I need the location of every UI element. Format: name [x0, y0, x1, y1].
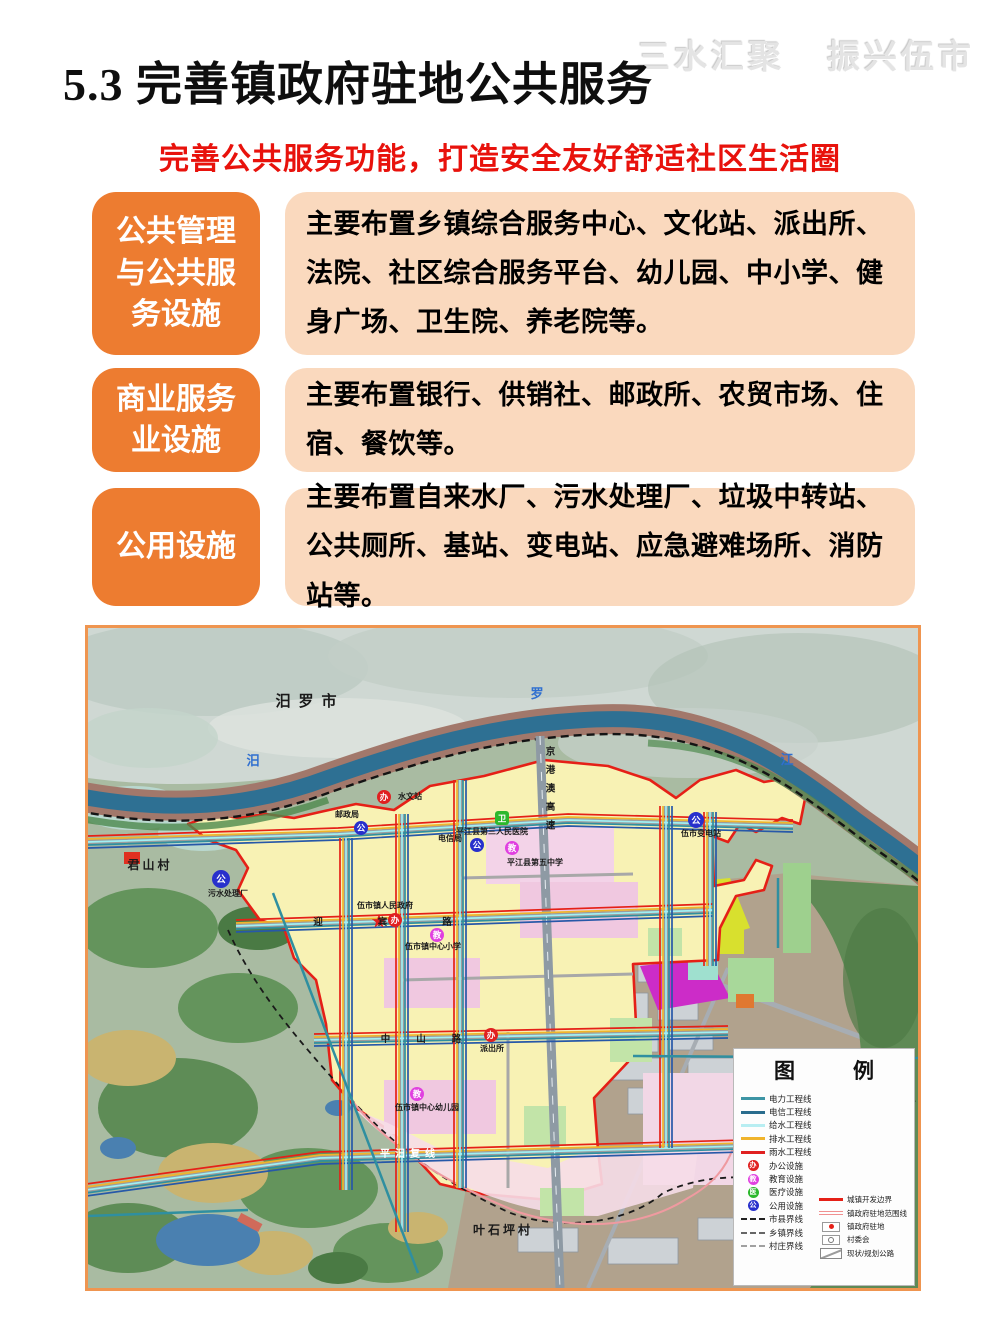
legend-title: 图 例 [741, 1055, 907, 1085]
row-utilities: 公用设施 主要布置自来水厂、污水处理厂、垃圾中转站、公共厕所、基站、变电站、应急… [0, 488, 1000, 606]
legend-item: 市县界线 [741, 1213, 819, 1226]
poi-label: 邮政局 [335, 809, 359, 819]
legend-item: 办办公设施 [741, 1159, 819, 1172]
poi-label: 伍市镇中心幼儿园 [394, 1102, 459, 1112]
svg-text:办: 办 [380, 792, 389, 802]
legend-item: 现状/规划公路 [819, 1247, 907, 1260]
svg-text:教: 教 [412, 1089, 422, 1099]
county-boundary-swatch [741, 1218, 765, 1220]
medical-legend-icon: 医 [748, 1187, 759, 1198]
watermark: 三水汇聚 振兴伍市 [637, 30, 975, 78]
watermark-left: 三水汇聚 [637, 30, 785, 78]
legend-item: 雨水工程线 [741, 1146, 819, 1159]
office-legend-icon: 办 [748, 1160, 759, 1171]
svg-text:公: 公 [473, 840, 482, 850]
legend-item: 排水工程线 [741, 1132, 819, 1145]
road-label: 中山路 [381, 1033, 488, 1045]
drainage-line-swatch [741, 1137, 765, 1140]
category-content-commercial: 主要布置银行、供销社、邮政所、农贸市场、住宿、餐饮等。 [285, 368, 915, 472]
svg-text:公: 公 [216, 875, 226, 886]
township-boundary-swatch [741, 1232, 765, 1234]
svg-text:公: 公 [357, 823, 366, 833]
legend-item: 医医疗设施 [741, 1186, 819, 1199]
legend-item: 村委会 [819, 1233, 907, 1246]
education-legend-icon: 教 [748, 1174, 759, 1185]
utility-legend-icon: 公 [748, 1200, 759, 1211]
svg-text:办: 办 [487, 1030, 496, 1040]
seat-range-swatch [819, 1211, 843, 1215]
page: 三水汇聚 振兴伍市 5.3 完善镇政府驻地公共服务 完善公共服务功能，打造安全友… [0, 0, 1000, 1333]
page-title: 5.3 完善镇政府驻地公共服务 [63, 48, 653, 114]
map-legend: 图 例 电力工程线 电信工程线 给水工程线 排水工程线 雨水工程线 办办公设施 … [733, 1048, 915, 1286]
power-line-swatch [741, 1097, 765, 1100]
poi-label: 平江县第五中学 [507, 857, 563, 867]
water-supply-line-swatch [741, 1124, 765, 1127]
legend-item: 电信工程线 [741, 1105, 819, 1118]
telecom-line-swatch [741, 1111, 765, 1114]
row-public-admin: 公共管理与公共服务设施 主要布置乡镇综合服务中心、文化站、派出所、法院、社区综合… [0, 192, 1000, 355]
legend-item: 给水工程线 [741, 1119, 819, 1132]
legend-item: 公公用设施 [741, 1199, 819, 1212]
village-label: 君山村 [126, 857, 172, 872]
row-commercial: 商业服务业设施 主要布置银行、供销社、邮政所、农贸市场、住宿、餐饮等。 [0, 368, 1000, 472]
city-label: 汨罗市 [275, 692, 344, 710]
legend-item: 镇政府驻地范围线 [819, 1206, 907, 1219]
svg-text:卫: 卫 [498, 814, 507, 824]
village-label: 叶石坪村 [473, 1222, 533, 1237]
svg-text:教: 教 [432, 930, 442, 940]
development-boundary-swatch [819, 1198, 843, 1202]
river-char: 江 [780, 752, 793, 767]
highway-swatch [820, 1248, 842, 1259]
village-committee-swatch [822, 1235, 840, 1245]
road-label: 京港澳高速 [544, 745, 556, 838]
government-seat-swatch [822, 1222, 840, 1232]
village-boundary-swatch [741, 1245, 765, 1247]
rainwater-line-swatch [741, 1151, 765, 1154]
legend-item: 镇政府驻地 [819, 1220, 907, 1233]
legend-item: 村庄界线 [741, 1239, 819, 1252]
category-content-public-admin: 主要布置乡镇综合服务中心、文化站、派出所、法院、社区综合服务平台、幼儿园、中小学… [285, 192, 915, 355]
category-content-utilities: 主要布置自来水厂、污水处理厂、垃圾中转站、公共厕所、基站、变电站、应急避难场所、… [285, 488, 915, 606]
planning-map: 办 办 办 教 教 教 卫 公 公 公 公 [85, 625, 921, 1291]
poi-label: 平江县第三人民医院 [456, 826, 528, 836]
svg-text:公: 公 [691, 816, 700, 826]
legend-item: 电力工程线 [741, 1092, 819, 1105]
river-char: 汨 [246, 753, 259, 768]
poi-label: 污水处理厂 [208, 888, 248, 898]
legend-item: 乡镇界线 [741, 1226, 819, 1239]
watermark-right: 振兴伍市 [827, 30, 975, 78]
subtitle: 完善公共服务功能，打造安全友好舒适社区生活圈 [0, 134, 1000, 178]
svg-text:教: 教 [507, 843, 517, 853]
poi-label: 伍市变电站 [680, 828, 721, 838]
road-label: 迎宾路 [313, 916, 507, 928]
road-label: 平汨复线 [380, 1147, 440, 1160]
poi-label: 水文站 [397, 791, 422, 801]
category-label-utilities: 公用设施 [92, 488, 260, 606]
legend-item: 城镇开发边界 [819, 1193, 907, 1206]
legend-right-column: 城镇开发边界 镇政府驻地范围线 镇政府驻地 村委会 现状/规划公路 [819, 1092, 907, 1282]
category-label-public-admin: 公共管理与公共服务设施 [92, 192, 260, 355]
poi-label: 伍市镇中心小学 [404, 941, 461, 951]
river-char: 罗 [530, 686, 543, 701]
poi-label: 伍市镇人民政府 [356, 900, 413, 910]
legend-item: 教教育设施 [741, 1172, 819, 1185]
legend-left-column: 电力工程线 电信工程线 给水工程线 排水工程线 雨水工程线 办办公设施 教教育设… [741, 1092, 819, 1282]
category-label-commercial: 商业服务业设施 [92, 368, 260, 472]
